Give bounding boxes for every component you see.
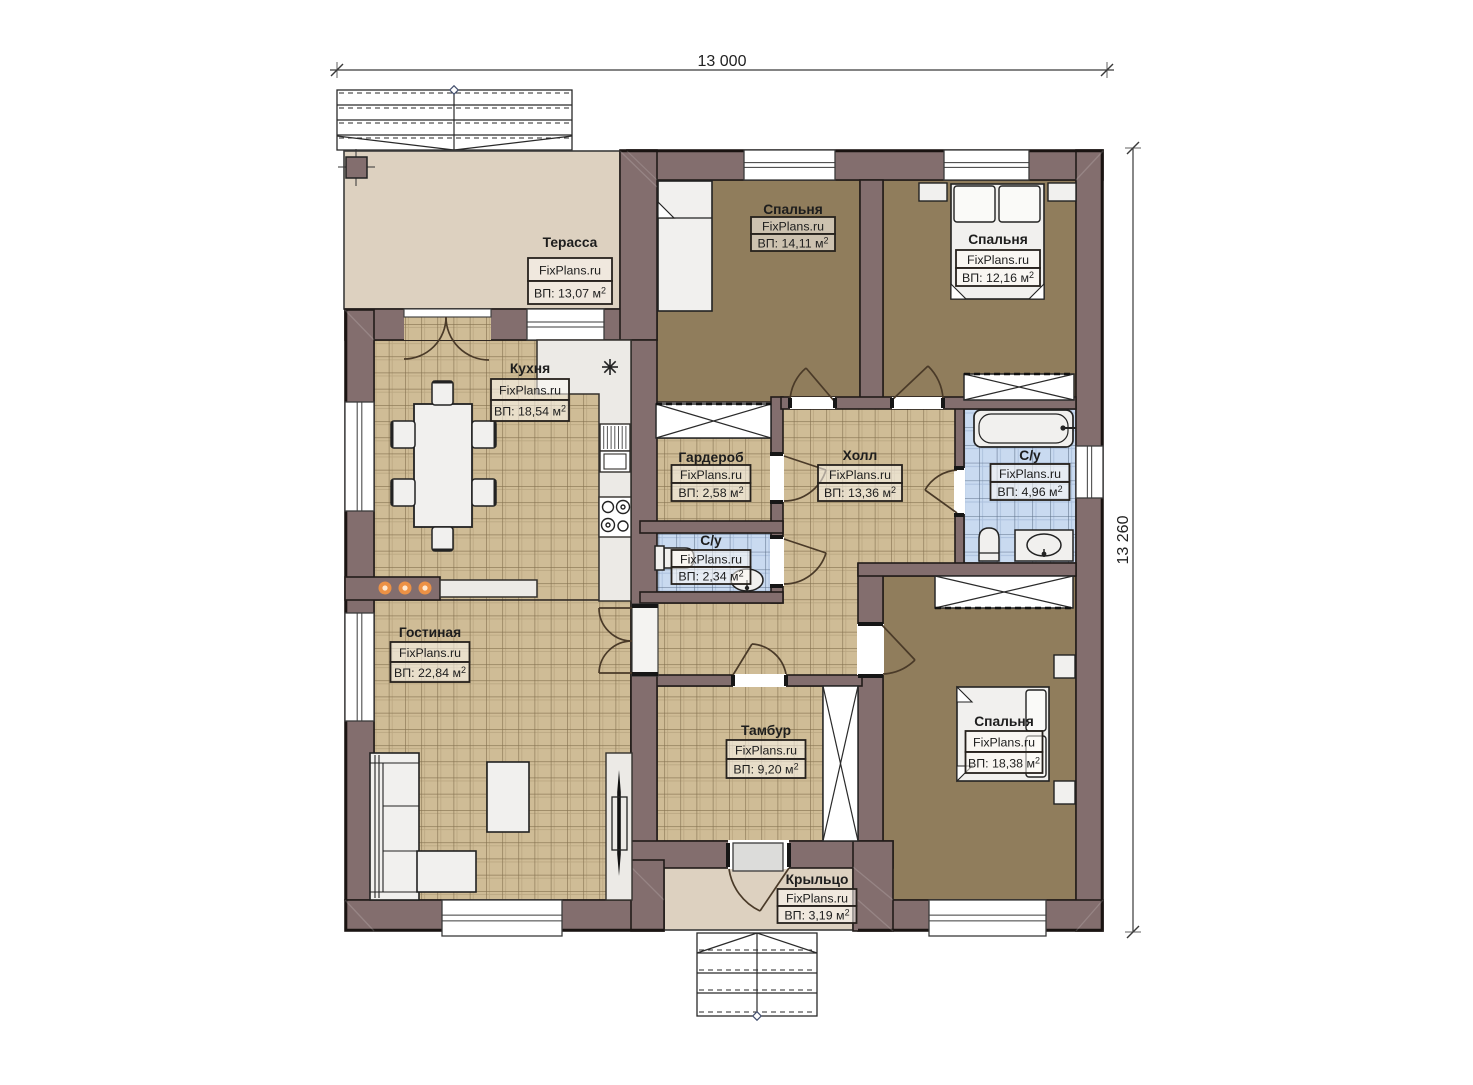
svg-text:С/у: С/у	[1019, 448, 1041, 463]
svg-text:Тамбур: Тамбур	[741, 723, 791, 738]
svg-text:FixPlans.ru: FixPlans.ru	[499, 384, 561, 398]
svg-text:13 260: 13 260	[1115, 515, 1132, 564]
svg-text:С/у: С/у	[700, 533, 722, 548]
svg-text:ВП: 4,96 м2: ВП: 4,96 м2	[997, 484, 1062, 499]
svg-text:FixPlans.ru: FixPlans.ru	[680, 468, 742, 482]
svg-text:FixPlans.ru: FixPlans.ru	[999, 467, 1061, 481]
svg-text:Кухня: Кухня	[510, 361, 550, 376]
svg-text:ВП: 2,58 м2: ВП: 2,58 м2	[678, 485, 743, 500]
svg-text:Гостиная: Гостиная	[399, 625, 461, 640]
svg-text:ВП: 3,19 м2: ВП: 3,19 м2	[784, 908, 849, 923]
svg-text:Спальня: Спальня	[763, 202, 823, 217]
svg-text:ВП: 2,34 м2: ВП: 2,34 м2	[678, 569, 743, 584]
svg-text:Спальня: Спальня	[974, 714, 1034, 729]
svg-text:FixPlans.ru: FixPlans.ru	[680, 553, 742, 567]
svg-text:Гардероб: Гардероб	[678, 450, 743, 465]
svg-text:ВП: 12,16 м2: ВП: 12,16 м2	[962, 270, 1034, 285]
svg-text:FixPlans.ru: FixPlans.ru	[762, 220, 824, 234]
svg-text:FixPlans.ru: FixPlans.ru	[735, 744, 797, 758]
svg-text:ВП: 13,36 м2: ВП: 13,36 м2	[824, 485, 896, 500]
svg-text:ВП: 18,54 м2: ВП: 18,54 м2	[494, 404, 566, 419]
svg-text:Крыльцо: Крыльцо	[786, 872, 849, 887]
svg-text:Спальня: Спальня	[968, 232, 1028, 247]
svg-text:ВП: 9,20 м2: ВП: 9,20 м2	[733, 762, 798, 777]
svg-text:FixPlans.ru: FixPlans.ru	[829, 468, 891, 482]
svg-text:FixPlans.ru: FixPlans.ru	[967, 253, 1029, 267]
svg-text:ВП: 22,84 м2: ВП: 22,84 м2	[394, 665, 466, 680]
svg-text:Терасса: Терасса	[543, 235, 598, 250]
svg-text:FixPlans.ru: FixPlans.ru	[973, 736, 1035, 750]
svg-text:13 000: 13 000	[698, 53, 747, 70]
svg-text:FixPlans.ru: FixPlans.ru	[539, 264, 601, 278]
svg-text:ВП: 14,11 м2: ВП: 14,11 м2	[757, 236, 828, 251]
svg-text:Холл: Холл	[843, 448, 878, 463]
svg-text:FixPlans.ru: FixPlans.ru	[786, 892, 848, 906]
svg-text:FixPlans.ru: FixPlans.ru	[399, 646, 461, 660]
svg-text:ВП: 13,07 м2: ВП: 13,07 м2	[534, 286, 606, 301]
svg-text:ВП: 18,38 м2: ВП: 18,38 м2	[968, 756, 1040, 771]
